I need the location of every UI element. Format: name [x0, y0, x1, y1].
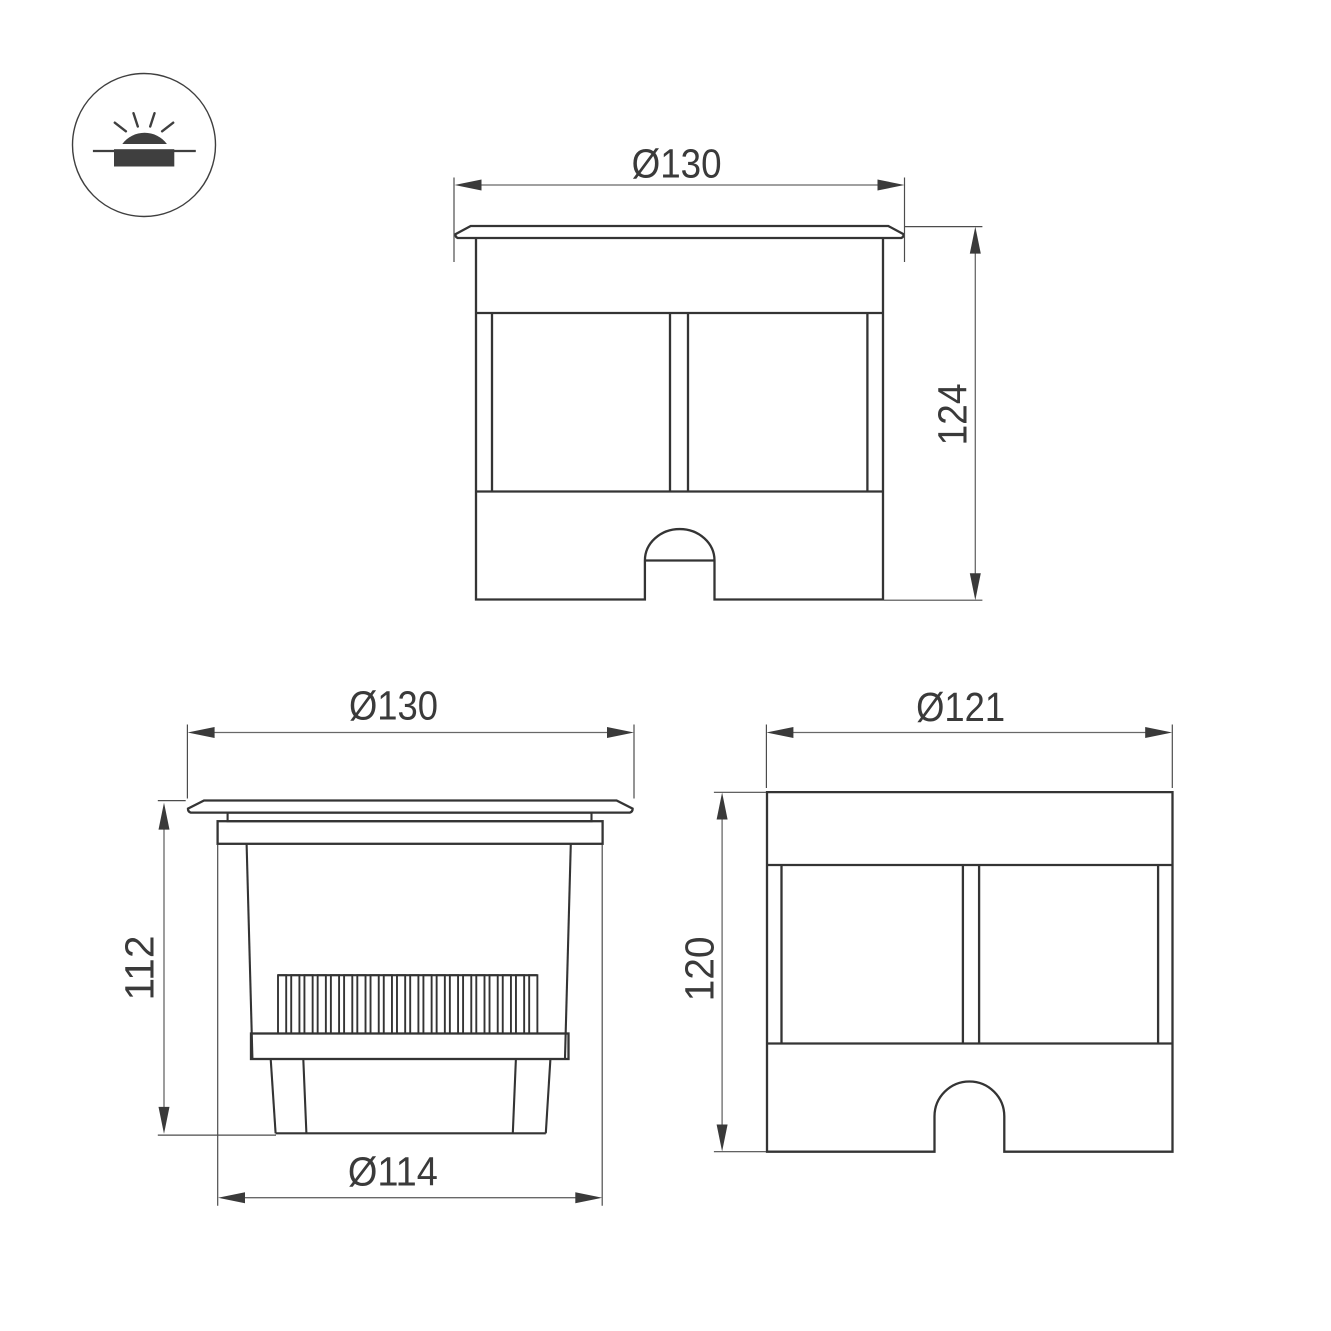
svg-text:112: 112: [117, 936, 163, 1001]
svg-text:Ø130: Ø130: [349, 682, 438, 728]
svg-text:Ø130: Ø130: [632, 141, 722, 187]
svg-text:124: 124: [929, 384, 975, 446]
svg-text:Ø114: Ø114: [348, 1149, 438, 1195]
svg-text:120: 120: [677, 936, 723, 1001]
svg-text:Ø121: Ø121: [916, 684, 1005, 730]
